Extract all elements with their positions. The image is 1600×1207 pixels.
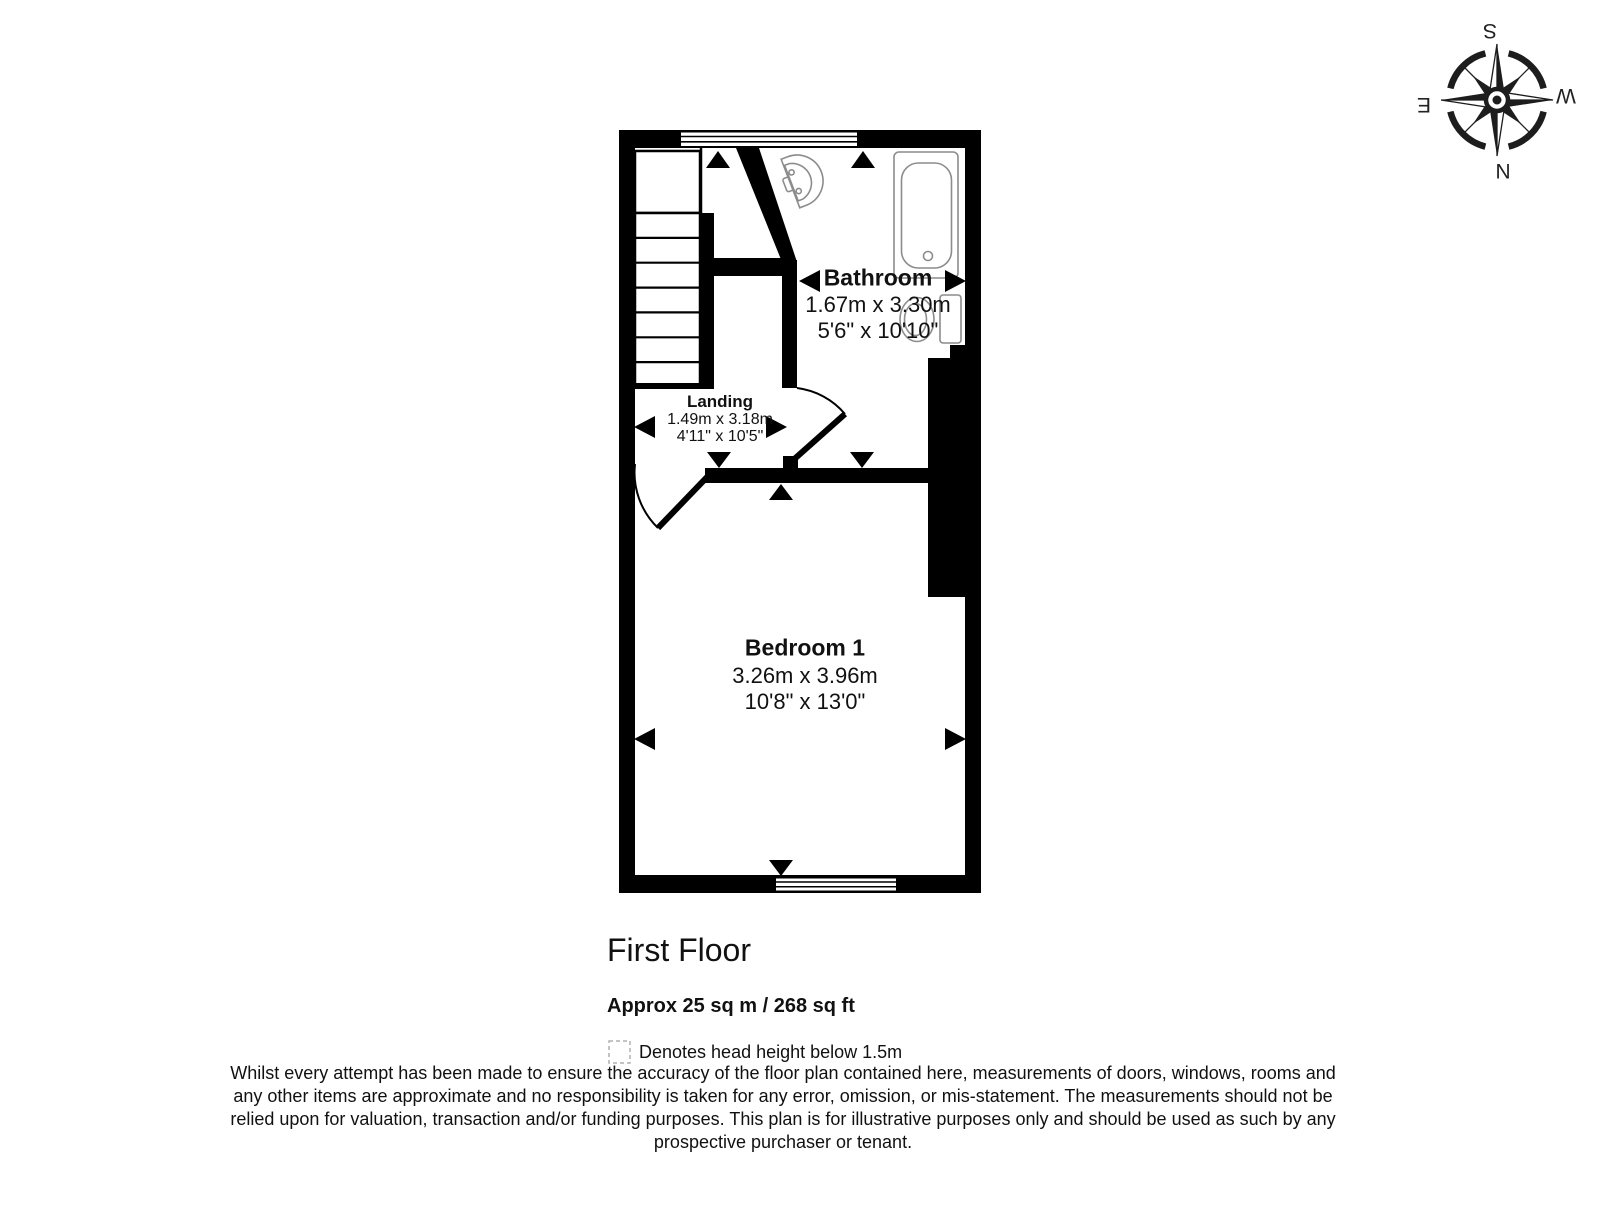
bedroom-door	[635, 464, 710, 528]
disclaimer: Whilst every attempt has been made to en…	[183, 1062, 1383, 1154]
marker-down-bathroom	[850, 452, 874, 468]
compass-letter-bottom: N	[1495, 158, 1510, 182]
bathroom-label: Bathroom	[824, 265, 933, 292]
sink-icon	[776, 147, 831, 210]
staircase	[635, 148, 714, 389]
chimney-breast-upper	[950, 345, 981, 597]
bathroom-dimensions-metric: 1.67m x 3.30m	[805, 292, 951, 318]
bathroom-dimensions-imperial: 5'6" x 10'10"	[818, 318, 939, 344]
chimney-breast	[928, 358, 950, 597]
floor-area: Approx 25 sq m / 268 sq ft	[607, 995, 855, 1018]
floor-title: First Floor	[607, 932, 751, 969]
wall-stairwell	[714, 258, 782, 276]
compass-icon	[1441, 44, 1553, 156]
bedroom-arrow-left	[634, 728, 655, 750]
landing-arrow-left	[634, 416, 655, 438]
marker-up-stairwell	[706, 151, 730, 168]
compass-letter-left: E	[1417, 92, 1431, 116]
floorplan-page: Bathroom 1.67m x 3.30m 5'6" x 10'10" Lan…	[0, 0, 1600, 1207]
bedroom-dimensions-imperial: 10'8" x 13'0"	[745, 689, 866, 715]
window-bottom	[775, 878, 897, 892]
bathroom-door	[791, 388, 845, 462]
compass-letter-top: S	[1483, 18, 1497, 42]
head-height-icon	[609, 1041, 630, 1063]
landing-dimensions-metric: 1.49m x 3.18m	[667, 411, 773, 429]
bedroom-arrow-right	[945, 728, 966, 750]
landing-label: Landing	[687, 392, 753, 412]
marker-up-bedroom	[769, 484, 793, 500]
wall-bathroom-left	[782, 260, 797, 388]
marker-down-bedroom	[769, 860, 793, 876]
bathroom-arrow-left	[799, 270, 820, 292]
stair-bottom-edge	[635, 383, 714, 389]
compass-letter-right: W	[1556, 83, 1576, 107]
landing-dimensions-imperial: 4'11" x 10'5"	[677, 428, 764, 446]
bedroom-door-swing-arc	[635, 464, 658, 528]
bathtub-icon	[894, 152, 958, 278]
disclaimer-line: Whilst every attempt has been made to en…	[183, 1062, 1383, 1085]
bathroom-door-swing-arc	[797, 388, 845, 414]
bedroom-dimensions-metric: 3.26m x 3.96m	[732, 663, 878, 689]
disclaimer-line: relied upon for valuation, transaction a…	[183, 1108, 1383, 1131]
marker-down-landing	[707, 452, 731, 468]
wall-bedroom-top	[705, 468, 928, 483]
floor-plan	[619, 130, 981, 893]
disclaimer-line: prospective purchaser or tenant.	[183, 1131, 1383, 1154]
window-top	[680, 132, 858, 148]
disclaimer-line: any other items are approximate and no r…	[183, 1085, 1383, 1108]
head-height-legend: Denotes head height below 1.5m	[639, 1042, 902, 1063]
marker-up-bathroom	[851, 151, 875, 168]
stair-side-wall	[700, 213, 714, 389]
compass-hub-dot	[1493, 96, 1502, 105]
bedroom-label: Bedroom 1	[745, 635, 865, 662]
wall-left	[619, 130, 635, 893]
floorplan-drawing	[0, 0, 1600, 1207]
